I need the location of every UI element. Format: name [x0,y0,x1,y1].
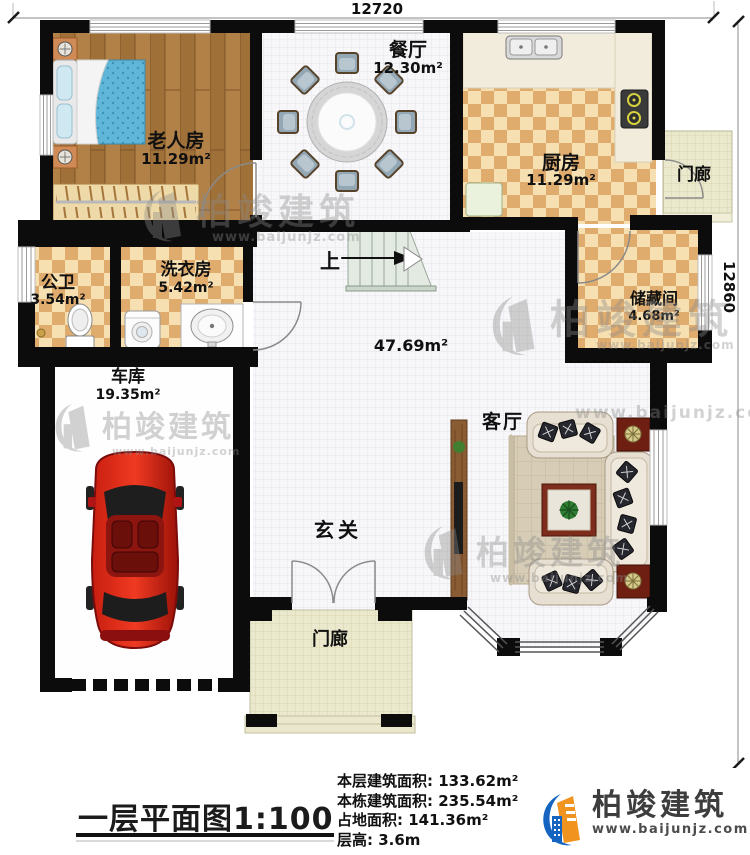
window-living-right [650,430,667,525]
label-bath: 公卫 [41,273,75,293]
garage-right-wall [233,355,250,692]
dim-top-label: 12720 [351,0,403,18]
toilet [66,304,94,349]
svg-text:www.baijunjz.com: www.baijunjz.com [212,230,361,245]
fridge [466,183,502,216]
kitchen-sink [506,36,562,59]
window-kitchen-top [498,20,615,33]
label-bath-area: 3.54m² [30,292,85,308]
svg-text:柏竣建筑: 柏竣建筑 [550,297,734,343]
label-hall-area: 47.69m² [374,336,448,355]
brand-logo-block: 柏竣建筑 www.baijunjz.com [540,790,749,848]
stat-floor-area: 本层建筑面积: 133.62m² [337,772,518,792]
window-dining-top [295,20,423,33]
floor-plan-drawing: 12720 12860 餐厅 12.30m² 老人房 11.29m² 厨房 11… [0,0,750,768]
label-laundry: 洗衣房 [161,259,212,280]
svg-text:www.baijunjz.com: www.baijunjz.com [490,571,629,585]
stat-footprint-area: 占地面积: 141.36m² [337,811,518,831]
cabinet-plant [453,441,465,453]
building-stats: 本层建筑面积: 133.62m² 本栋建筑面积: 235.54m² 占地面积: … [337,772,518,850]
coffee-table [542,484,596,536]
porch-bottom-floor [250,610,412,716]
window-bedroom-top [90,20,210,33]
nightstand-top [53,38,77,60]
stat-floor-height: 层高: 3.6m [337,831,518,851]
brand-website: www.baijunjz.com [592,822,749,837]
label-dining: 餐厅 [389,38,427,61]
label-laundry-area: 5.42m² [158,280,213,296]
watermark-3b: www.baijunjz.com [575,403,750,423]
car [86,452,184,648]
svg-text:柏竣建筑: 柏竣建筑 [476,533,624,572]
plan-title: 一层平面图1:100 [78,794,334,838]
brand-logo-icon [540,790,584,848]
kitchen-stove [621,90,648,128]
svg-text:www.baijunjz.com: www.baijunjz.com [596,338,735,352]
label-porch-bottom: 门廊 [312,628,348,650]
label-porch-top: 门廊 [677,164,711,185]
title-underline-light [76,840,334,842]
svg-text:柏竣建筑: 柏竣建筑 [196,192,360,233]
window-bedroom-left [40,95,53,155]
label-elderly-area: 11.29m² [141,150,211,168]
label-elderly: 老人房 [147,129,204,152]
nightstand-bottom [53,146,77,168]
label-garage: 车库 [111,366,145,387]
svg-text:www.baijunjz.com: www.baijunjz.com [112,445,240,458]
laundry-sink [181,304,243,349]
brand-name: 柏竣建筑 [592,790,749,822]
label-stairs-up: 上 [320,249,340,273]
title-underline [76,833,334,837]
label-garage-area: 19.35m² [95,387,160,403]
label-dining-area: 12.30m² [373,59,443,77]
stat-total-area: 本栋建筑面积: 235.54m² [337,792,518,812]
dining-table [307,82,387,162]
washing-machine [125,311,160,348]
footer: 一层平面图1:100 本层建筑面积: 133.62m² 本栋建筑面积: 235.… [0,768,750,855]
floor-drain [37,329,45,337]
label-living: 客厅 [482,410,524,433]
svg-text:柏竣建筑: 柏竣建筑 [102,410,234,445]
label-kitchen-area: 11.29m² [526,171,596,189]
label-foyer: 玄关 [314,518,362,542]
floor-plan-page: 12720 12860 餐厅 12.30m² 老人房 11.29m² 厨房 11… [0,0,750,855]
bed [53,60,145,144]
